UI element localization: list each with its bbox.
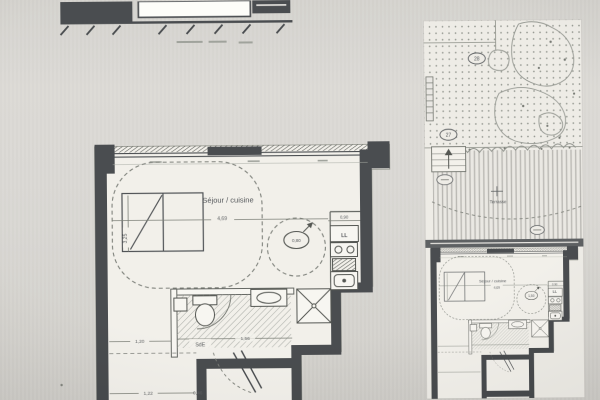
plant-tag-27-label: 27 <box>446 133 452 139</box>
section-detail <box>60 0 292 45</box>
small-turning-circle-label: 1,50 <box>528 294 534 298</box>
plan-linework <box>95 141 393 400</box>
main-height-dim: 3,25 <box>123 233 129 243</box>
main-room-label: Séjour / cuisine <box>202 195 253 204</box>
section-opening <box>138 0 250 17</box>
plant-tag-28: 28 <box>468 53 485 64</box>
washer-label: LL <box>341 233 348 239</box>
entry-dim-2: 1,22 <box>143 391 153 397</box>
section-wall-left <box>60 1 132 22</box>
paper-speck <box>60 384 62 386</box>
floor-plan-drawing: 28 27 Terrasse <box>0 0 600 400</box>
entry-dim-1: 1,20 <box>135 339 145 345</box>
entry-dim-3: 0,46 <box>193 390 203 396</box>
terrace-label: Terrasse <box>490 199 507 204</box>
photo-of-floor-plan: 28 27 Terrasse <box>0 0 600 400</box>
small-washer-label: LL <box>553 290 557 294</box>
section-wall-right <box>252 0 290 13</box>
bath-label: SdE <box>195 342 205 348</box>
photo-tilt-wrapper: 28 27 Terrasse <box>0 0 600 400</box>
main-floor-plan: Séjour / cuisine 4,69 3,25 0,90 LL 0,80 … <box>95 141 393 400</box>
section-caption-smudge <box>177 40 253 44</box>
stair-box <box>432 147 466 172</box>
garden-area: 28 27 <box>423 20 582 148</box>
small-room-label: Séjour / cuisine <box>479 278 507 283</box>
plant-tag-27: 27 <box>440 129 457 140</box>
small-width-dim: 4,69 <box>494 286 500 290</box>
plant-tag-28-label: 28 <box>474 56 480 62</box>
main-width-dim: 4,69 <box>217 216 227 222</box>
small-kitchen-dim: 0,90 <box>552 282 558 286</box>
planting-ladder-detail <box>426 77 433 121</box>
ground-hatch-ticks <box>60 24 284 35</box>
bath-width-dim: 1,56 <box>241 336 251 342</box>
terrace-area: Terrasse <box>425 144 584 248</box>
turning-circle-label: 0,80 <box>292 238 301 243</box>
kitchen-dim: 0,90 <box>340 215 349 220</box>
